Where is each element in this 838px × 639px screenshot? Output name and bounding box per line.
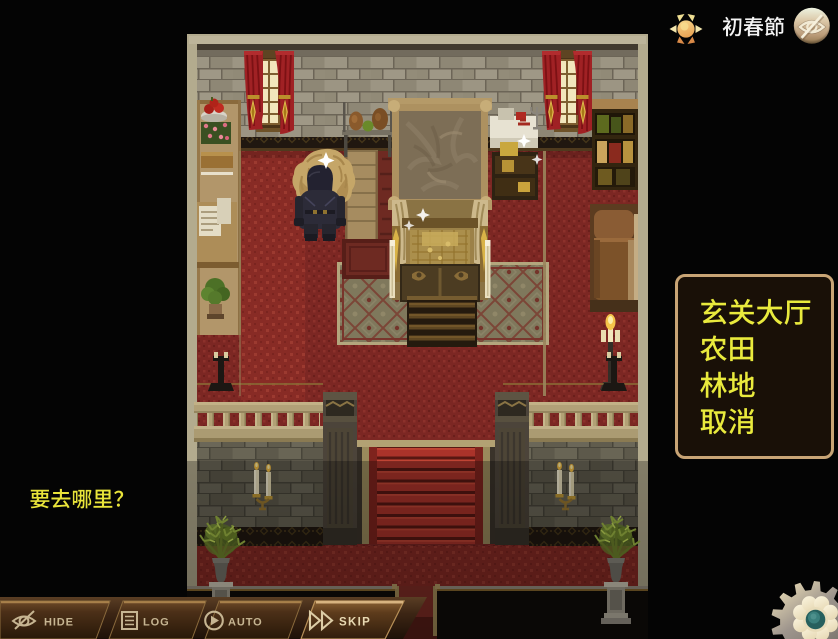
svg-text:HIDE: HIDE (44, 617, 74, 629)
svg-text:LOG: LOG (143, 617, 170, 629)
svg-text:AUTO: AUTO (228, 617, 263, 629)
svg-text:SKIP: SKIP (339, 617, 371, 629)
